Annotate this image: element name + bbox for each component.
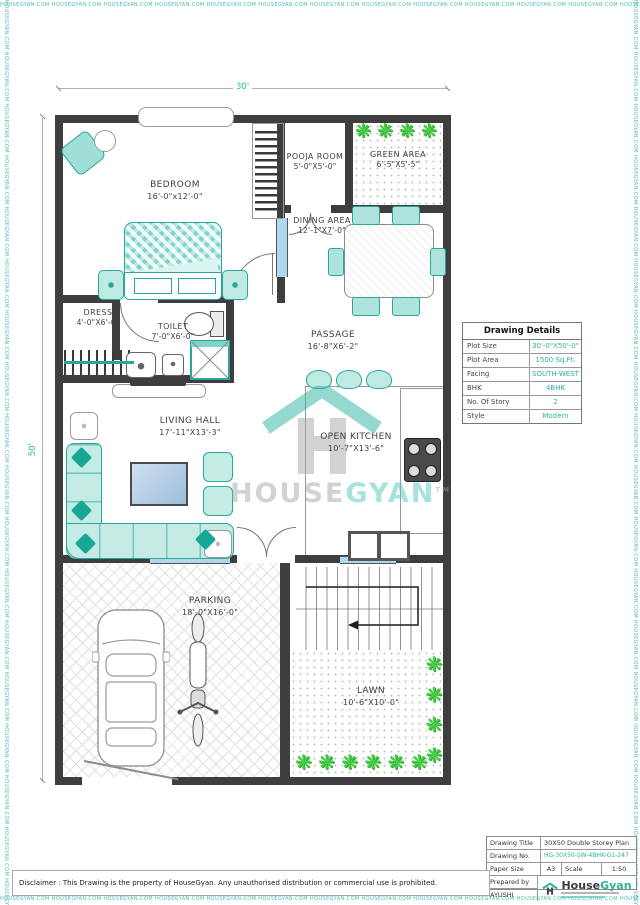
drawing-title-value: 30X50 Double Storey Plan — [541, 837, 636, 849]
bed-drawer-right — [178, 278, 216, 294]
scale-label: Scale — [562, 863, 602, 875]
motorbike-icon — [176, 612, 220, 752]
motorbike — [176, 612, 220, 752]
dimension-line-left — [42, 118, 43, 782]
car-icon — [92, 606, 170, 770]
bedroom-door-leaf — [272, 253, 273, 295]
toilet-label: TOILET7'-0"X6'-0" — [136, 322, 210, 342]
living-hall-label: LIVING HALL17'-11"X13'-3" — [130, 416, 250, 438]
drawing-no-value: HG-30X50-SW-4BHK-G1-247 — [541, 850, 636, 862]
logo-gyan-text: Gyan — [600, 879, 631, 892]
table-row: No. Of Story2 — [463, 396, 581, 410]
housegyan-watermark-text: HOUSEGYANTM — [230, 480, 414, 507]
housegyan-logo-text: HouseGyan — [561, 880, 631, 891]
main-door-left-arc — [237, 527, 267, 557]
wall-dining-west — [277, 277, 285, 303]
housegyan-logo-icon — [542, 882, 558, 896]
watermark-border-right: HOUSEGYAN.COM HOUSEGYAN.COM HOUSEGYAN.CO… — [630, 0, 639, 905]
drawing-title-label: Drawing Title — [487, 837, 541, 849]
lawn-plants-right: ❋ ❋ ❋ ❋ — [423, 652, 445, 770]
toilet-vanity — [126, 352, 156, 378]
tv-console — [112, 384, 206, 398]
plot-height-dimension: 50' — [28, 440, 38, 459]
wall-bottom — [172, 777, 451, 785]
lawn-plants-bottom: ❋ ❋ ❋ ❋ ❋ ❋ — [295, 748, 435, 776]
bedroom-side-table — [94, 130, 116, 152]
watermark-tm: TM — [435, 486, 451, 494]
kitchen-sink-left — [348, 531, 380, 561]
dimension-line-top — [58, 88, 448, 89]
watermark-border-top: HOUSEGYAN.COM HOUSEGYAN.COM HOUSEGYAN.CO… — [0, 1, 640, 10]
open-kitchen-label: OPEN KITCHEN10'-7"X13'-6" — [300, 432, 412, 454]
table-row: Plot Size30'-0"X50'-0" — [463, 340, 581, 354]
drawing-no-label: Drawing No. — [487, 850, 541, 862]
nightstand-left — [98, 270, 124, 300]
plant-icon: ❋ ❋ ❋ ❋ — [355, 120, 437, 142]
disclaimer-text: Disclaimer : This Drawing is the propert… — [12, 870, 490, 896]
paper-size-label: Paper Size — [487, 863, 541, 875]
dining-chair — [352, 297, 380, 316]
scale-value: 1:50 — [602, 863, 636, 875]
passage-label: PASSAGE16'-8"X6'-2" — [293, 330, 373, 352]
kitchen-sink-right — [378, 531, 410, 561]
watermark-house-text: HOUSE — [230, 478, 345, 509]
lawn-label: LAWN10'-6"X10'-0" — [318, 686, 424, 708]
bedroom-window — [138, 107, 234, 127]
plot-width-dimension: 30' — [233, 82, 252, 92]
parking-label: PARKING18'-0"X16'-0" — [145, 596, 275, 618]
ottoman — [203, 452, 233, 482]
prepared-by-label: Prepared by — [487, 876, 537, 889]
title-block-bottom: Prepared by AYUSHI HouseGyan — [487, 876, 636, 901]
plant-icon: ❋ ❋ ❋ ❋ — [423, 652, 445, 767]
shower-icon — [190, 340, 230, 380]
dining-chair — [392, 206, 420, 225]
green-area-plants: ❋ ❋ ❋ ❋ — [355, 118, 443, 144]
wall-parking-lawn — [280, 563, 290, 785]
housegyan-logo: HouseGyan — [538, 876, 636, 901]
logo-house-text: House — [561, 879, 600, 892]
table-row: FacingSOUTH-WEST — [463, 368, 581, 382]
pooja-room-label: POOJA ROOM5'-0"X5'-0" — [283, 152, 347, 172]
bed-drawer-left — [134, 278, 172, 294]
tv-panel — [130, 380, 186, 386]
prepared-by-value: AYUSHI — [487, 889, 537, 901]
dining-chair — [392, 297, 420, 316]
plant-icon: ❋ ❋ ❋ ❋ ❋ ❋ — [295, 750, 427, 774]
car — [92, 606, 170, 770]
dining-area-label: DINING AREA12'-1"X7'-0" — [284, 216, 360, 236]
wall-bottom-left-stub — [55, 777, 82, 785]
staircase-icon — [296, 565, 443, 652]
table-row: BHK4BHK — [463, 382, 581, 396]
title-block: Drawing Title 30X50 Double Storey Plan D… — [486, 836, 637, 890]
main-door-right-arc — [266, 527, 296, 557]
dress-rack-rail — [64, 361, 134, 364]
table-row: Plot Area1500 Sq.Ft. — [463, 354, 581, 368]
bedroom-label: BEDROOM16'-0"x12'-0" — [115, 180, 235, 202]
ottoman — [203, 486, 233, 516]
details-table-title: Drawing Details — [463, 323, 581, 340]
wall-left — [55, 115, 63, 785]
floor-plan-sheet: HOUSEGYAN.COM HOUSEGYAN.COM HOUSEGYAN.CO… — [0, 0, 640, 905]
title-block-row: Drawing Title 30X50 Double Storey Plan — [487, 837, 636, 850]
housegyan-watermark: HOUSEGYANTM — [230, 386, 414, 524]
dress-label: DRESS4'-0"X6'-0" — [60, 308, 136, 328]
nightstand-right — [222, 270, 248, 300]
wash-basin — [162, 354, 184, 376]
logo-tagline-bars — [561, 892, 631, 898]
drawing-details-table: Drawing Details Plot Size30'-0"X50'-0" P… — [462, 322, 582, 424]
title-block-row: Paper Size A3 Scale 1:50 — [487, 863, 636, 876]
shower-area — [190, 340, 230, 380]
title-block-row: Drawing No. HG-30X50-SW-4BHK-G1-247 — [487, 850, 636, 863]
paper-size-value: A3 — [541, 863, 562, 875]
prepared-by-cell: Prepared by AYUSHI — [487, 876, 538, 901]
green-area-label: GREEN AREA6'-5"X5'-5" — [355, 150, 441, 170]
center-table — [130, 462, 188, 506]
wardrobe-shelf — [252, 123, 284, 219]
staircase — [296, 565, 443, 652]
dining-chair — [430, 248, 446, 276]
corner-table-top — [70, 412, 98, 440]
watermark-border-left: HOUSEGYAN.COM HOUSEGYAN.COM HOUSEGYAN.CO… — [1, 0, 10, 905]
dining-chair — [328, 248, 344, 276]
table-row: StyleModern — [463, 410, 581, 423]
watermark-gyan-text: GYAN — [345, 478, 435, 509]
